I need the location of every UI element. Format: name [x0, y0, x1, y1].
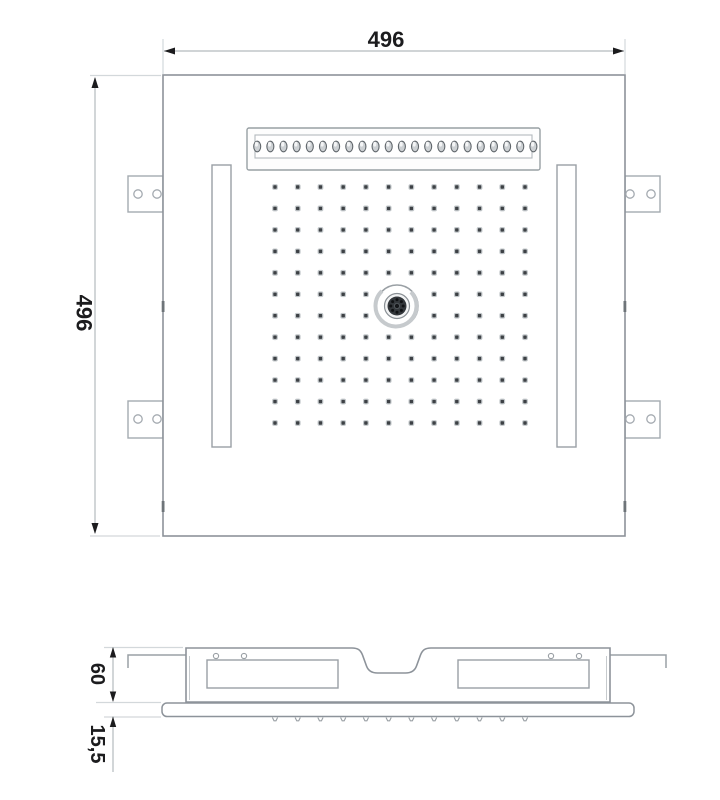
- spray-nozzle-dot: [432, 271, 437, 276]
- screw-hole-icon: [647, 415, 655, 423]
- spray-nozzle-dot: [523, 206, 528, 211]
- spray-nozzle-dot: [273, 356, 278, 361]
- arrowhead-up-icon: [92, 77, 99, 88]
- spray-nozzle-dot: [364, 206, 369, 211]
- spray-nozzle-dot: [477, 399, 482, 404]
- jet-ring-dot: [400, 309, 403, 312]
- spray-nozzle-dot: [341, 335, 346, 340]
- spray-nozzle-dot: [409, 228, 414, 233]
- spray-nozzle-dot: [341, 206, 346, 211]
- profile-height-label: 60: [86, 663, 108, 685]
- side-nozzle-tick: [409, 718, 414, 721]
- spray-nozzle-dot: [523, 313, 528, 318]
- spray-nozzle-dot: [295, 335, 300, 340]
- drawing-svg: 496 496: [0, 0, 720, 800]
- flange-left: [128, 655, 186, 668]
- spray-nozzle-dot: [455, 249, 460, 254]
- waterfall-nozzle-highlight: [399, 142, 402, 147]
- waterfall-nozzle-highlight: [373, 142, 376, 147]
- waterfall-nozzle-highlight: [518, 142, 521, 147]
- spray-nozzle-dot: [523, 335, 528, 340]
- waterfall-nozzle-highlight: [386, 142, 389, 147]
- spray-nozzle-dot: [364, 399, 369, 404]
- jet-ring-dot: [389, 305, 392, 308]
- center-jet: [376, 285, 418, 327]
- spray-nozzle-dot: [364, 271, 369, 276]
- spray-nozzle-dot: [295, 378, 300, 383]
- spray-nozzle-dot: [477, 378, 482, 383]
- led-strip-right: [557, 165, 576, 447]
- spray-nozzle-dot: [432, 292, 437, 297]
- spray-nozzle-dot: [432, 356, 437, 361]
- spray-nozzle-dot: [318, 185, 323, 190]
- spray-nozzle-dot: [318, 378, 323, 383]
- spray-nozzle-dot: [341, 356, 346, 361]
- spray-nozzle-dot: [409, 206, 414, 211]
- spray-nozzle-dot: [318, 356, 323, 361]
- waterfall-nozzle-highlight: [347, 142, 350, 147]
- spray-nozzle-dot: [341, 421, 346, 426]
- spray-nozzle-dot: [409, 185, 414, 190]
- spray-nozzle-dot: [341, 185, 346, 190]
- seam-mark: [162, 301, 165, 312]
- spray-nozzle-dot: [409, 399, 414, 404]
- spray-nozzle-dot: [318, 421, 323, 426]
- spray-nozzle-dot: [273, 228, 278, 233]
- waterfall-nozzle-highlight: [492, 142, 495, 147]
- housing-hole-icon: [548, 653, 553, 658]
- spray-nozzle-dot: [523, 399, 528, 404]
- left-height-dimension: 496: [71, 77, 98, 534]
- housing-cavity-left: [207, 660, 338, 688]
- spray-nozzle-dot: [341, 399, 346, 404]
- waterfall-nozzle-highlight: [426, 142, 429, 147]
- spray-nozzle-dot: [455, 185, 460, 190]
- flange-right: [610, 655, 666, 668]
- side-view: 60 15,5: [86, 647, 666, 772]
- arrowhead-up-icon: [110, 717, 116, 728]
- waterfall-nozzle-highlight: [439, 142, 442, 147]
- spray-nozzle-dot: [500, 249, 505, 254]
- spray-nozzle-dot: [295, 313, 300, 318]
- spray-nozzle-dot: [523, 249, 528, 254]
- spray-nozzle-dot: [318, 335, 323, 340]
- arrowhead-down-icon: [92, 523, 99, 534]
- screw-hole-icon: [134, 415, 142, 423]
- spray-nozzle-dot: [500, 185, 505, 190]
- side-nozzle-tick: [431, 718, 436, 721]
- spray-nozzle-dot: [386, 335, 391, 340]
- top-width-dimension: 496: [164, 27, 624, 55]
- side-nozzle-ticks: [272, 718, 527, 721]
- waterfall-nozzle-highlight: [307, 142, 310, 147]
- spray-nozzle-dot: [273, 378, 278, 383]
- arrowhead-right-icon: [613, 48, 624, 55]
- spray-nozzle-dot: [318, 399, 323, 404]
- spray-nozzle-dot: [432, 185, 437, 190]
- spray-nozzle-dot: [523, 292, 528, 297]
- spray-nozzle-dot: [455, 421, 460, 426]
- spray-nozzle-dot: [455, 313, 460, 318]
- side-nozzle-tick: [272, 718, 277, 721]
- spray-nozzle-dot: [432, 313, 437, 318]
- spray-nozzle-dot: [432, 399, 437, 404]
- led-strip-left: [212, 165, 231, 447]
- spray-nozzle-dot: [500, 271, 505, 276]
- spray-nozzle-dot: [523, 271, 528, 276]
- spray-nozzle-dot: [455, 399, 460, 404]
- side-nozzle-tick: [477, 718, 482, 721]
- spray-nozzle-dot: [432, 228, 437, 233]
- spray-nozzle-dot: [273, 292, 278, 297]
- spray-nozzle-dot: [364, 378, 369, 383]
- screw-hole-icon: [153, 415, 161, 423]
- side-nozzle-tick: [295, 718, 300, 721]
- spray-nozzle-dot: [523, 378, 528, 383]
- spray-nozzle-dot: [477, 292, 482, 297]
- spray-nozzle-dot: [341, 292, 346, 297]
- spray-nozzle-dot: [432, 249, 437, 254]
- spray-nozzle-dot: [500, 421, 505, 426]
- spray-nozzle-dot: [409, 271, 414, 276]
- panel-thickness-dimension: 15,5: [86, 717, 116, 773]
- spray-nozzle-dot: [432, 378, 437, 383]
- spray-nozzle-dot: [477, 356, 482, 361]
- spray-nozzle-dot: [273, 399, 278, 404]
- spray-nozzle-dot: [341, 271, 346, 276]
- spray-nozzle-dot: [477, 313, 482, 318]
- spray-nozzle-dot: [409, 249, 414, 254]
- spray-nozzle-dot: [273, 206, 278, 211]
- waterfall-nozzle-highlight: [281, 142, 284, 147]
- spray-nozzle-dot: [523, 185, 528, 190]
- waterfall-nozzle-highlight: [413, 142, 416, 147]
- spray-nozzle-dot: [500, 228, 505, 233]
- spray-nozzle-dot: [386, 249, 391, 254]
- spray-nozzle-dot: [477, 335, 482, 340]
- spray-nozzle-dot: [455, 335, 460, 340]
- spray-nozzle-dot: [295, 228, 300, 233]
- waterfall-nozzle-highlight: [360, 142, 363, 147]
- seam-mark: [162, 501, 165, 512]
- screw-hole-icon: [626, 415, 634, 423]
- left-height-label: 496: [71, 295, 96, 332]
- spray-nozzle-dot: [477, 271, 482, 276]
- spray-nozzle-dot: [318, 271, 323, 276]
- spray-nozzle-dot: [273, 185, 278, 190]
- spray-nozzle-dot: [341, 313, 346, 318]
- spray-nozzle-dot: [295, 421, 300, 426]
- housing-hole-icon: [241, 653, 246, 658]
- spray-nozzle-dot: [500, 356, 505, 361]
- screw-hole-icon: [153, 190, 161, 198]
- waterfall-nozzle-highlight: [321, 142, 324, 147]
- spray-nozzle-dot: [409, 421, 414, 426]
- spray-nozzle-dot: [318, 292, 323, 297]
- side-nozzle-tick: [341, 718, 346, 721]
- spray-nozzle-dot: [477, 249, 482, 254]
- spray-nozzle-dot: [341, 228, 346, 233]
- spray-nozzle-dot: [295, 399, 300, 404]
- spray-nozzle-dot: [364, 292, 369, 297]
- spray-nozzle-dot: [500, 378, 505, 383]
- side-nozzle-tick: [522, 718, 527, 721]
- spray-nozzle-dot: [295, 292, 300, 297]
- spray-nozzle-dot: [477, 185, 482, 190]
- arrowhead-up-icon: [110, 647, 116, 658]
- waterfall-nozzle-highlight: [334, 142, 337, 147]
- spray-nozzle-dot: [386, 378, 391, 383]
- screw-hole-icon: [647, 190, 655, 198]
- spray-nozzle-dot: [432, 421, 437, 426]
- spray-nozzle-dot: [364, 185, 369, 190]
- spray-nozzle-dot: [500, 292, 505, 297]
- spray-nozzle-dot: [500, 206, 505, 211]
- waterfall-nozzle-highlight: [294, 142, 297, 147]
- spray-nozzle-dot: [273, 335, 278, 340]
- jet-ring-dot: [396, 298, 399, 301]
- jet-ring-dot: [400, 300, 403, 303]
- waterfall-nozzle-highlight: [478, 142, 481, 147]
- jet-ring-dot: [396, 311, 399, 314]
- waterfall-slot: [247, 128, 540, 170]
- spray-nozzle-dot: [386, 356, 391, 361]
- spray-nozzle-dot: [273, 249, 278, 254]
- spray-nozzle-dot: [386, 421, 391, 426]
- spray-nozzle-dot: [523, 228, 528, 233]
- spray-nozzle-dot: [455, 206, 460, 211]
- waterfall-nozzle-highlight: [465, 142, 468, 147]
- panel-thickness-label: 15,5: [86, 725, 108, 764]
- spray-nozzle-dot: [432, 335, 437, 340]
- spray-nozzle-dot: [523, 421, 528, 426]
- spray-nozzle-dot: [500, 399, 505, 404]
- seam-mark: [624, 501, 627, 512]
- spray-nozzle-dot: [273, 313, 278, 318]
- spray-nozzle-dot: [523, 356, 528, 361]
- technical-drawing: 496 496: [0, 0, 720, 800]
- jet-center-hole: [394, 303, 399, 308]
- profile-height-dimension: 60: [86, 647, 116, 702]
- spray-nozzle-dot: [341, 378, 346, 383]
- side-nozzle-tick: [318, 718, 323, 721]
- side-nozzle-tick: [363, 718, 368, 721]
- seam-mark: [624, 301, 627, 312]
- spray-nozzle-dot: [295, 249, 300, 254]
- top-width-label: 496: [368, 27, 405, 52]
- spray-nozzle-dot: [318, 313, 323, 318]
- spray-nozzle-dot: [295, 206, 300, 211]
- spray-nozzle-dot: [386, 185, 391, 190]
- side-nozzle-tick: [454, 718, 459, 721]
- waterfall-nozzle-highlight: [452, 142, 455, 147]
- side-nozzle-tick: [386, 718, 391, 721]
- spray-nozzle-dot: [318, 206, 323, 211]
- spray-nozzle-dot: [386, 228, 391, 233]
- spray-nozzle-dot: [500, 313, 505, 318]
- spray-nozzle-dot: [341, 249, 346, 254]
- waterfall-nozzle-highlight: [268, 142, 271, 147]
- jet-ring-dot: [391, 300, 394, 303]
- housing-hole-icon: [576, 653, 581, 658]
- spray-nozzle-dot: [295, 185, 300, 190]
- screw-hole-icon: [626, 190, 634, 198]
- face-plate-profile: [162, 703, 634, 717]
- spray-nozzle-dot: [273, 421, 278, 426]
- spray-nozzle-dot: [455, 228, 460, 233]
- screw-hole-icon: [134, 190, 142, 198]
- spray-nozzle-dot: [364, 335, 369, 340]
- spray-nozzle-dot: [364, 228, 369, 233]
- arrowhead-left-icon: [164, 48, 175, 55]
- spray-nozzle-dot: [386, 399, 391, 404]
- jet-ring-dot: [402, 305, 405, 308]
- spray-nozzle-dot: [364, 356, 369, 361]
- housing-cavity-right: [458, 660, 589, 688]
- spray-nozzle-dot: [295, 271, 300, 276]
- housing-hole-icon: [213, 653, 218, 658]
- spray-nozzle-dot: [318, 249, 323, 254]
- spray-nozzle-dot: [477, 421, 482, 426]
- spray-nozzle-dot: [409, 356, 414, 361]
- spray-nozzle-dot: [500, 335, 505, 340]
- spray-nozzle-dot: [409, 335, 414, 340]
- side-nozzle-tick: [500, 718, 505, 721]
- spray-nozzle-dot: [455, 378, 460, 383]
- spray-nozzle-dot: [295, 356, 300, 361]
- waterfall-nozzle-highlight: [531, 142, 534, 147]
- top-view: 496 496: [71, 27, 660, 536]
- spray-nozzle-dot: [477, 206, 482, 211]
- spray-nozzle-dot: [409, 378, 414, 383]
- spray-nozzle-dot: [364, 249, 369, 254]
- waterfall-nozzle-highlight: [505, 142, 508, 147]
- spray-nozzle-dot: [455, 356, 460, 361]
- spray-nozzle-dot: [432, 206, 437, 211]
- spray-nozzle-dot: [477, 228, 482, 233]
- waterfall-nozzle-highlight: [255, 142, 258, 147]
- spray-nozzle-dot: [455, 271, 460, 276]
- spray-nozzle-dot: [364, 421, 369, 426]
- spray-nozzle-dot: [386, 271, 391, 276]
- spray-nozzle-dot: [273, 271, 278, 276]
- spray-nozzle-dot: [386, 206, 391, 211]
- spray-nozzle-dot: [364, 313, 369, 318]
- spray-nozzle-dot: [455, 292, 460, 297]
- jet-ring-dot: [391, 309, 394, 312]
- spray-nozzle-dot: [318, 228, 323, 233]
- arrowhead-down-icon: [110, 692, 116, 703]
